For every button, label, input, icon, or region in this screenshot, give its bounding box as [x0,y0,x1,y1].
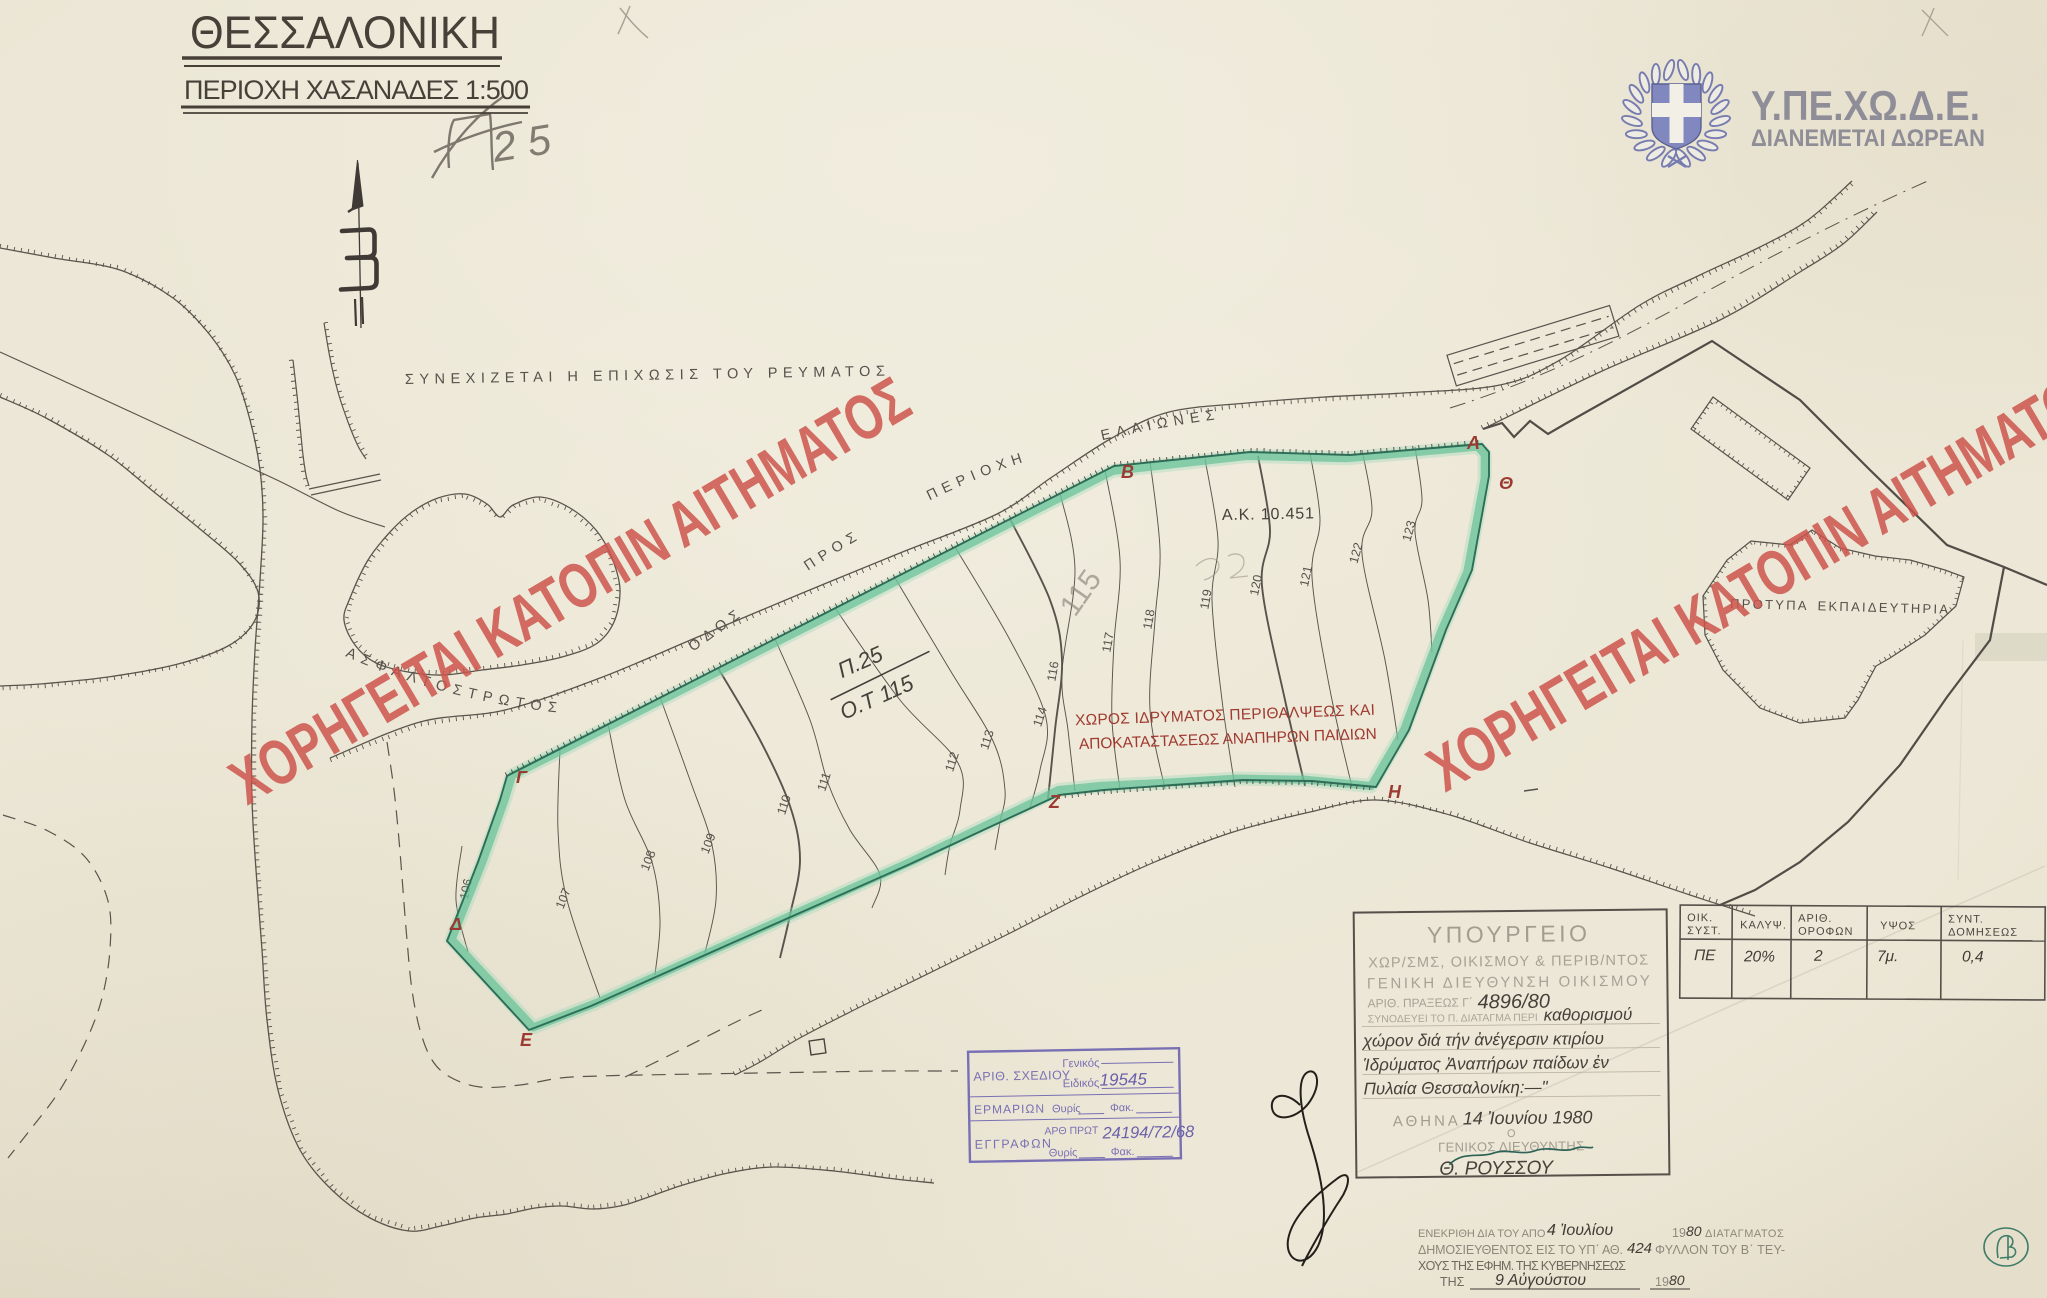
svg-text:0,4: 0,4 [1962,949,1984,966]
svg-text:Δ: Δ [449,914,462,934]
svg-text:Γ: Γ [516,767,528,787]
svg-text:ΘΕΣΣΑΛΟΝΙΚΗ: ΘΕΣΣΑΛΟΝΙΚΗ [190,7,500,58]
svg-text:ΔΗΜΟΣΙΕΥΘΕΝΤΟΣ ΕΙΣ ΤΟ ΥΠ΄ ΑΘ.: ΔΗΜΟΣΙΕΥΘΕΝΤΟΣ ΕΙΣ ΤΟ ΥΠ΄ ΑΘ. [1418,1243,1623,1257]
svg-text:Θ: Θ [1499,473,1513,493]
svg-text:7μ.: 7μ. [1877,948,1899,965]
svg-text:ΥΨΟΣ: ΥΨΟΣ [1880,920,1916,932]
svg-text:9 Αὐγούστου: 9 Αὐγούστου [1495,1272,1586,1289]
svg-text:Z: Z [1048,792,1061,812]
svg-text:ΔΟΜΗΣΕΩΣ: ΔΟΜΗΣΕΩΣ [1948,926,2018,938]
svg-text:καθορισμού: καθορισμού [1544,1005,1633,1025]
svg-text:Θυρίς: Θυρίς [1052,1103,1081,1115]
svg-text:Φακ.: Φακ. [1111,1146,1135,1158]
svg-text:E: E [520,1030,533,1050]
svg-text:ΑΡΘ ΠΡΩΤ: ΑΡΘ ΠΡΩΤ [1044,1125,1099,1138]
svg-text:Υ.ΠΕ.ΧΩ.Δ.Ε.: Υ.ΠΕ.ΧΩ.Δ.Ε. [1751,82,1980,129]
svg-text:ΑΡΙΘ. ΠΡΑΞΕΩΣ Γ΄: ΑΡΙΘ. ΠΡΑΞΕΩΣ Γ΄ [1368,995,1473,1010]
svg-text:24194/72/68: 24194/72/68 [1101,1123,1195,1143]
svg-text:ΚΑΛΥΨ.: ΚΑΛΥΨ. [1740,919,1787,931]
svg-text:ΕΝΕΚΡΙΘΗ ΔΙΑ ΤΟΥ ΑΠΟ: ΕΝΕΚΡΙΘΗ ΔΙΑ ΤΟΥ ΑΠΟ [1418,1228,1546,1240]
svg-text:2: 2 [1813,948,1823,965]
svg-text:χώρον διά τήν ἀνέγερσιν κτιρίο: χώρον διά τήν ἀνέγερσιν κτιρίου [1361,1029,1604,1051]
svg-text:4896/80: 4896/80 [1477,991,1550,1014]
svg-text:20%: 20% [1743,948,1775,965]
svg-text:Ειδικός: Ειδικός [1063,1078,1100,1091]
svg-text:424: 424 [1627,1240,1652,1257]
svg-text:ΦΥΛΛΟΝ ΤΟΥ Β΄ ΤΕΥ-: ΦΥΛΛΟΝ ΤΟΥ Β΄ ΤΕΥ- [1655,1243,1785,1257]
svg-text:B: B [1121,462,1134,482]
svg-text:80: 80 [1686,1223,1702,1239]
svg-text:ΟΡΟΦΩΝ: ΟΡΟΦΩΝ [1798,926,1853,938]
svg-text:4 Ἰουλίου: 4 Ἰουλίου [1547,1222,1613,1239]
svg-text:ΑΡΙΘ.: ΑΡΙΘ. [1798,913,1832,925]
svg-text:ΧΟΥΣ ΤΗΣ ΕΦΗΜ. ΤΗΣ ΚΥΒΕΡΝΗΣΕΩΣ: ΧΟΥΣ ΤΗΣ ΕΦΗΜ. ΤΗΣ ΚΥΒΕΡΝΗΣΕΩΣ [1418,1259,1626,1273]
svg-text:ΑΘΗΝΑ: ΑΘΗΝΑ [1393,1113,1461,1131]
svg-text:A: A [1466,433,1480,453]
svg-text:Θυρίς: Θυρίς [1049,1147,1078,1159]
svg-text:Γενικός: Γενικός [1062,1058,1100,1071]
svg-text:ΟΙΚ.: ΟΙΚ. [1687,912,1713,924]
svg-text:ΕΡΜΑΡΙΩΝ: ΕΡΜΑΡΙΩΝ [974,1102,1045,1117]
svg-text:ΑΡΙΘ. ΣΧΕΔΙΟΥ: ΑΡΙΘ. ΣΧΕΔΙΟΥ [973,1068,1071,1084]
svg-text:ΣΥΣΤ.: ΣΥΣΤ. [1687,925,1722,937]
svg-text:ΥΠΟΥΡΓΕΙΟ: ΥΠΟΥΡΓΕΙΟ [1427,920,1595,948]
svg-text:Φακ.: Φακ. [1110,1102,1134,1114]
svg-text:ΣΥΝΟΔΕΥΕΙ ΤΟ Π. ΔΙΑΤΑΓΜΑ ΠΕΡΙ: ΣΥΝΟΔΕΥΕΙ ΤΟ Π. ΔΙΑΤΑΓΜΑ ΠΕΡΙ [1368,1012,1538,1026]
svg-text:H: H [1388,782,1402,802]
svg-text:ΠΕΡΙΟΧΗ ΧΑΣΑΝΑΔΕΣ 1:500: ΠΕΡΙΟΧΗ ΧΑΣΑΝΑΔΕΣ 1:500 [184,75,529,105]
svg-text:ΔΙΑΝΕΜΕΤΑΙ ΔΩΡΕΑΝ: ΔΙΑΝΕΜΕΤΑΙ ΔΩΡΕΑΝ [1751,125,1985,152]
svg-text:Α.Κ. 10.451: Α.Κ. 10.451 [1222,505,1314,524]
svg-text:ΧΩΡ/ΣΜΣ, ΟΙΚΙΣΜΟΥ & ΠΕΡΙΒ/ΝΤΟΣ: ΧΩΡ/ΣΜΣ, ΟΙΚΙΣΜΟΥ & ΠΕΡΙΒ/ΝΤΟΣ [1368,953,1648,972]
svg-text:ΕΓΓΡΑΦΩΝ: ΕΓΓΡΑΦΩΝ [975,1136,1053,1151]
svg-text:80: 80 [1669,1272,1685,1288]
svg-text:ΤΗΣ: ΤΗΣ [1440,1275,1465,1289]
svg-text:ΔΙΑΤΑΓΜΑΤΟΣ: ΔΙΑΤΑΓΜΑΤΟΣ [1705,1228,1784,1240]
svg-text:Ἱδρύματος Ἀναπήρων παίδων ἐν: Ἱδρύματος Ἀναπήρων παίδων ἐν [1363,1053,1609,1075]
svg-text:19: 19 [1672,1226,1686,1240]
svg-text:19545: 19545 [1099,1070,1147,1090]
svg-text:Πυλαία Θεσσαλονίκη:—": Πυλαία Θεσσαλονίκη:—" [1363,1078,1548,1099]
svg-text:19: 19 [1655,1275,1669,1289]
svg-text:Θ. ΡΟΥΣΣΟΥ: Θ. ΡΟΥΣΣΟΥ [1439,1158,1554,1180]
svg-text:ΣΥΝΤ.: ΣΥΝΤ. [1948,913,1984,925]
svg-text:ΠΕ: ΠΕ [1694,947,1716,964]
svg-text:2 5: 2 5 [488,115,555,171]
svg-text:14 Ἰουνίου 1980: 14 Ἰουνίου 1980 [1463,1107,1593,1128]
